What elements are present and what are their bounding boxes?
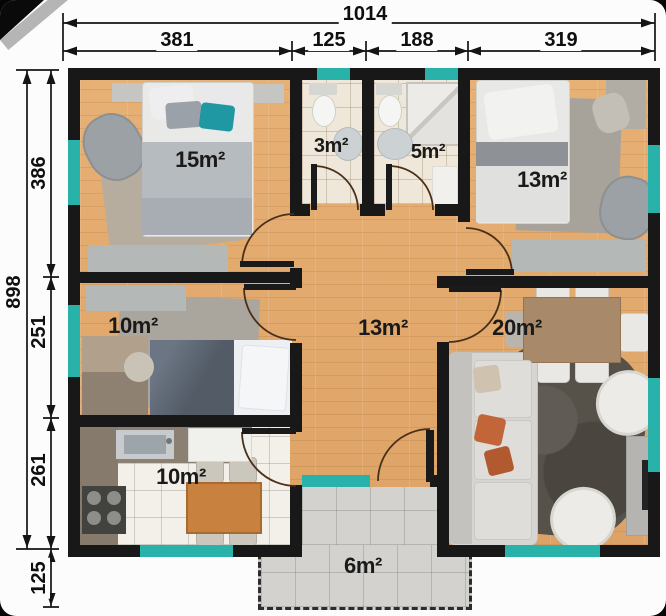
arrow-icon	[641, 19, 654, 28]
room-label-bathroom: 5m²	[411, 142, 445, 162]
wall-interior	[68, 272, 302, 283]
wall-interior	[437, 276, 660, 288]
bed-blanket-fold	[142, 198, 252, 235]
stool	[124, 352, 154, 382]
terrace-floor-inner	[302, 487, 437, 545]
nightstand	[252, 84, 284, 103]
faucet	[166, 438, 172, 444]
burner	[107, 511, 121, 525]
room-label-wc: 3m²	[314, 136, 348, 156]
kitchen-sink-basin	[124, 435, 166, 454]
wall-interior	[290, 204, 310, 216]
window	[140, 545, 233, 557]
burner	[87, 491, 101, 505]
wall-interior	[362, 68, 374, 216]
arrow-icon	[47, 71, 56, 84]
room-label-bedroom-13: 13m²	[517, 169, 567, 191]
pillow-orange	[473, 413, 506, 446]
window	[317, 68, 350, 80]
arrow-icon	[47, 418, 56, 431]
sideboard	[512, 240, 646, 272]
window	[68, 305, 80, 377]
pillow-teal	[199, 102, 236, 132]
pillow	[238, 344, 290, 411]
room-label-bedroom-15: 15m²	[175, 149, 225, 171]
arrow-icon	[366, 47, 379, 56]
fridge	[188, 428, 252, 462]
room-label-bedroom-10: 10m²	[108, 315, 158, 337]
wall-interior	[458, 68, 470, 222]
dim-seg-terrace-125: 125	[28, 557, 50, 598]
arrow-icon	[47, 264, 56, 277]
arrow-icon	[64, 47, 77, 56]
dim-seg-381: 381	[156, 29, 197, 51]
toilet	[312, 95, 336, 127]
pillow	[165, 101, 203, 129]
sofa-backrest	[448, 352, 472, 544]
arrow-icon	[47, 536, 56, 549]
wall-interior	[290, 485, 302, 557]
sideboard	[86, 286, 186, 311]
pillow	[483, 83, 559, 140]
toilet-tank	[376, 83, 402, 95]
wall-interior	[290, 343, 302, 432]
pillow	[472, 364, 501, 393]
arrow-icon	[47, 405, 56, 418]
arrow-icon	[468, 47, 481, 56]
toilet-tank	[309, 83, 337, 95]
wall-interior	[360, 204, 385, 216]
bed-duvet	[150, 340, 234, 415]
sideboard	[88, 245, 228, 272]
burner	[107, 491, 121, 505]
arrow-icon	[23, 535, 32, 548]
dim-seg-319: 319	[540, 29, 581, 51]
wall-interior	[68, 415, 302, 427]
bed-blanket	[476, 142, 568, 168]
room-label-kitchen: 10m²	[156, 466, 206, 488]
wall-interior	[437, 342, 449, 545]
nightstand	[112, 83, 146, 102]
wall-interior	[290, 268, 302, 288]
wall-interior	[430, 475, 449, 487]
dim-seg-386: 386	[28, 152, 50, 193]
wall-interior	[435, 204, 470, 216]
wall-exterior-right	[648, 68, 660, 557]
burner	[87, 511, 101, 525]
toilet	[378, 95, 402, 127]
dining-chair	[619, 313, 650, 352]
shower	[406, 82, 460, 146]
bath-cabinet	[432, 166, 458, 206]
dim-seg-188: 188	[396, 29, 437, 51]
arrow-icon	[23, 71, 32, 84]
floorplan-paper: 15m² 3m² 5m² 13m² 10m² 13m² 20m² 10m² 6m…	[0, 0, 666, 616]
sink	[377, 128, 413, 160]
dim-seg-261: 261	[28, 449, 50, 490]
arrow-icon	[292, 47, 305, 56]
window	[505, 545, 600, 557]
arrow-icon	[47, 277, 56, 290]
sofa-cushion	[474, 482, 532, 540]
dim-total-width: 1014	[339, 3, 392, 25]
window	[648, 145, 660, 213]
wall-interior	[290, 68, 302, 216]
arrow-icon	[455, 47, 468, 56]
arrow-icon	[353, 47, 366, 56]
room-label-hallway: 13m²	[358, 317, 408, 339]
kitchen-table	[186, 482, 262, 534]
window	[68, 140, 80, 205]
room-label-terrace: 6m²	[344, 555, 382, 577]
arrow-icon	[279, 47, 292, 56]
dim-seg-251: 251	[28, 311, 50, 352]
window	[648, 378, 660, 472]
window	[425, 68, 458, 80]
window	[302, 475, 370, 487]
dim-seg-125: 125	[308, 29, 349, 51]
floorplan-screenshot: 15m² 3m² 5m² 13m² 10m² 13m² 20m² 10m² 6m…	[0, 0, 666, 616]
dim-total-height: 898	[3, 271, 25, 312]
arrow-icon	[64, 19, 77, 28]
arrow-icon	[641, 47, 654, 56]
room-label-living: 20m²	[492, 317, 542, 339]
